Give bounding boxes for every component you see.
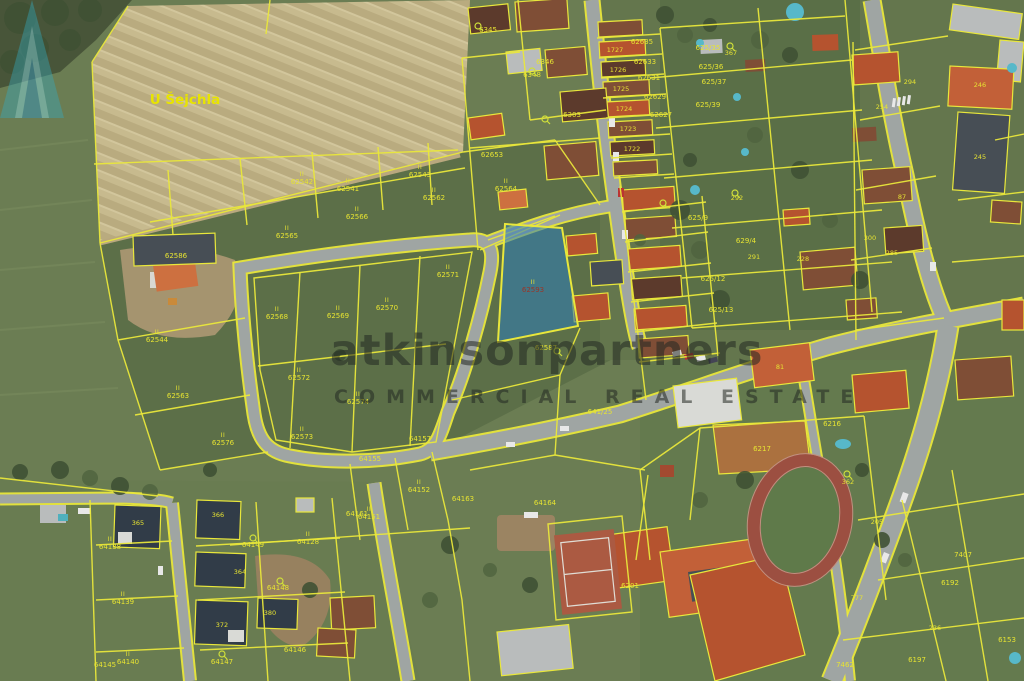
parcel-number-label: 62586 [165,252,188,260]
house-number-label: 254 [876,103,888,111]
house-number-label: 228 [797,255,809,263]
parcel-number-label: 6348 [523,71,541,79]
house-number-label: 372 [216,621,228,629]
house-number-label: 294 [904,78,916,86]
house-number-label: 1727 [607,46,624,54]
parcel-number-label: 62566 [346,213,369,221]
parcel-number-label: 64146 [284,646,307,654]
parcel-number-label: 625/37 [702,78,727,86]
house-number-label: 245 [974,153,986,161]
house-number-label: 205 [871,518,883,526]
parcel-number-label: 62635 [631,38,653,46]
parcel-number-label: 62568 [266,313,288,321]
landuse-mark: II [300,171,305,178]
parcel-number-label: 6192 [941,579,959,587]
parcel-number-label: 64148 [267,584,289,592]
parcel-number-label: 62572 [288,374,310,382]
landuse-mark: II [336,305,341,312]
house-number-label: 87 [898,193,906,201]
parcel-number-label: 62593 [522,286,544,294]
parcel-number-label: 625/12 [701,275,726,283]
house-number-label: 1723 [620,125,637,133]
house-number-label: 777 [851,594,863,602]
house-number-label: 380 [264,609,276,617]
landuse-mark: II [176,385,181,392]
parcel-number-label: 6217 [753,445,771,453]
parcel-number-label: 62541 [337,185,359,193]
landuse-mark: II [418,164,423,171]
aerial-map: U Šejchla62542II62541II62543II62562II625… [0,0,1024,681]
parcel-number-label: 625/36 [699,63,724,71]
landuse-mark: II [155,329,160,336]
house-number-label: 366 [212,511,224,519]
house-number-label: 81 [776,363,784,371]
parcel-number-label: 62574 [347,398,370,406]
parcel-number-label: 625/13 [709,306,734,314]
parcel-number-label: 62562 [423,194,445,202]
parcel-number-label: 64161 [346,510,368,518]
landuse-mark: II [346,178,351,185]
parcel-number-label: 625/9 [688,214,708,222]
house-number-label: 364 [234,568,246,576]
house-number-label: 236 [929,624,941,632]
landuse-mark: II [126,651,131,658]
playground [660,465,674,477]
parcel-number-label: 62542 [291,178,313,186]
tennis-court [554,529,622,615]
parcel-number-label: 64128 [297,538,319,546]
parcel-number-label: 62573 [291,433,313,441]
landuse-mark: II [356,391,361,398]
parcel-number-label: 64155 [359,455,381,463]
parcel-number-label: 64145 [94,661,116,669]
parcel-number-label: 6197 [908,656,926,664]
house-number-label: 365 [132,519,144,527]
landuse-mark: II [417,479,422,486]
house-number-label: 285 [886,249,898,257]
parcel-number-label: 6346 [536,58,554,66]
parcel-number-label: 62563 [167,392,189,400]
parcel-number-label: 62653 [481,151,503,159]
house-number-label: 362 [842,478,854,486]
parcel-number-label: 629/4 [736,237,757,245]
house-number-label: 1724 [616,105,633,113]
parcel-number-label: 625/35 [696,44,721,52]
parcel-number-label: 64157 [409,435,431,443]
parcel-number-label: 64149 [242,541,264,549]
parcel-number-label: 64138 [99,543,121,551]
parcel-number-label: 62543 [409,171,431,179]
parcel-number-label: 62627 [650,111,672,119]
landuse-mark: II [531,279,536,286]
house-number-label: 1726 [610,66,627,74]
landuse-mark: II [504,178,509,185]
parcel-number-label: 62571 [437,271,459,279]
parcel-number-label: 62633 [634,58,656,66]
parcel-number-label: 625/39 [696,101,721,109]
map-canvas[interactable]: U Šejchla62542II62541II62543II62562II625… [0,0,1024,681]
parcel-number-label: 62565 [276,232,298,240]
landuse-mark: II [300,426,305,433]
parcel-number-label: 7407 [954,551,972,559]
house-number-label: 1725 [613,85,630,93]
parcel-number-label: 64163 [452,495,474,503]
parcel-number-label: 6201 [621,582,639,590]
parcel-number-label: 64139 [112,598,134,606]
parcel-number-label: 6303 [563,111,581,119]
house-number-label: 291 [748,253,760,261]
landuse-mark: II [297,367,302,374]
parcel-number-label: 62569 [327,312,349,320]
parcel-number-label: 62564 [495,185,518,193]
parcel-number-label: 62629 [644,93,666,101]
landuse-mark: II [221,432,226,439]
house-number-label: 246 [974,81,986,89]
place-label: U Šejchla [150,90,221,108]
parcel-number-label: 62631 [638,74,660,82]
house-number-label: 300 [864,234,876,242]
landuse-mark: II [306,531,311,538]
landuse-mark: II [108,536,113,543]
parcel-number-label: 64140 [117,658,139,666]
parcel-number-label: 7462 [836,661,854,669]
parcel-number-label: 641/25 [588,408,613,416]
landuse-mark: II [385,297,390,304]
parcel-number-label: 64147 [211,658,233,666]
parcel-number-label: 6216 [823,420,841,428]
parcel-number-label: 6153 [998,636,1016,644]
landuse-mark: II [446,264,451,271]
parcel-number-label: 62570 [376,304,398,312]
landuse-mark: II [355,206,360,213]
house-number-label: 1722 [624,145,641,153]
landuse-mark: II [285,225,290,232]
house-number-label: 367 [725,49,737,57]
landuse-mark: II [121,591,126,598]
parcel-number-label: 64164 [534,499,557,507]
parcel-number-label: 62544 [146,336,169,344]
landuse-mark: II [275,306,280,313]
landuse-mark: II [432,187,437,194]
parcel-number-label: 64152 [408,486,430,494]
parcel-number-label: 62576 [212,439,235,447]
